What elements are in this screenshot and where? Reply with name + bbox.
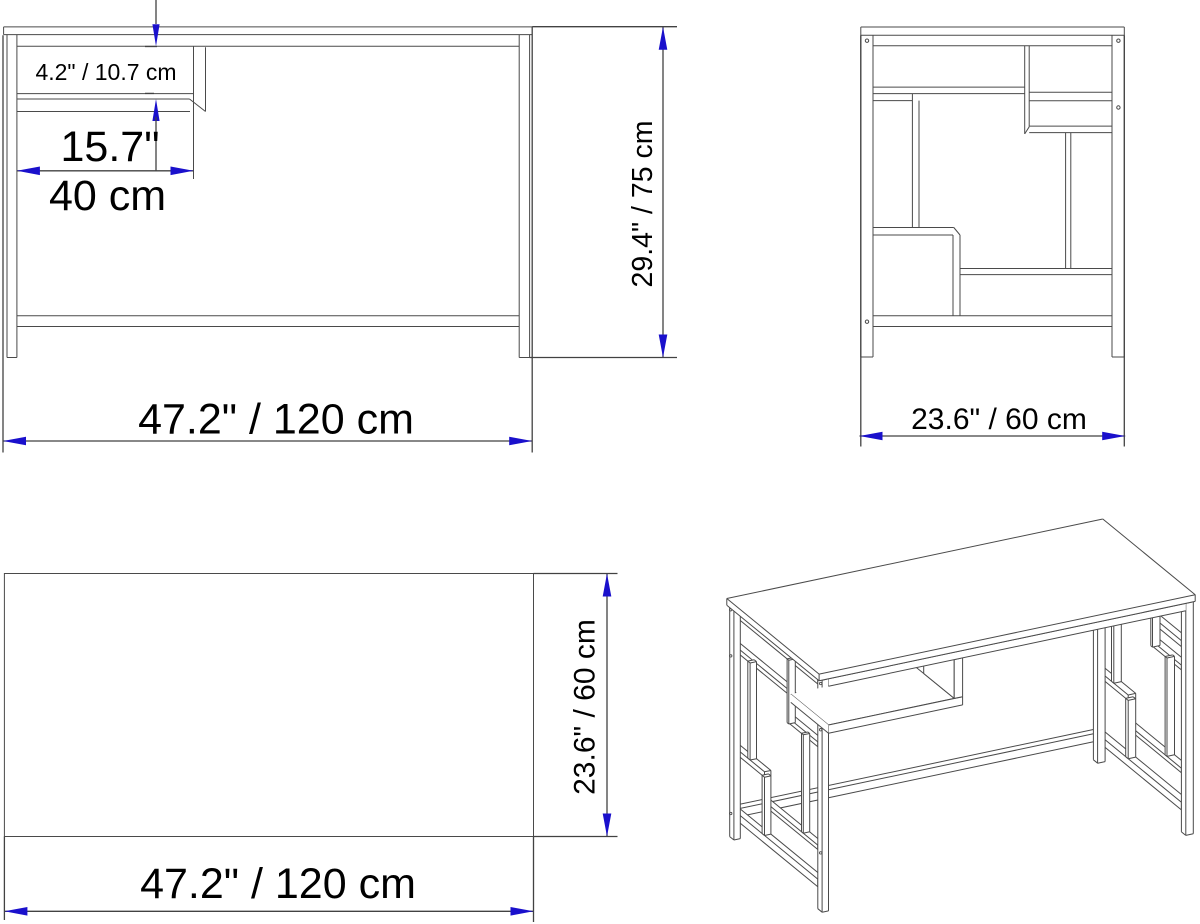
svg-text:23.6" / 60 cm: 23.6" / 60 cm [569, 619, 602, 795]
svg-text:40 cm: 40 cm [49, 172, 166, 220]
svg-text:47.2" / 120 cm: 47.2" / 120 cm [138, 396, 414, 444]
svg-text:29.4" / 75 cm: 29.4" / 75 cm [627, 121, 659, 288]
svg-text:23.6" / 60 cm: 23.6" / 60 cm [911, 403, 1087, 436]
svg-text:47.2" / 120 cm: 47.2" / 120 cm [140, 860, 416, 908]
svg-text:4.2" / 10.7 cm: 4.2" / 10.7 cm [35, 59, 176, 85]
svg-text:15.7": 15.7" [61, 123, 160, 171]
